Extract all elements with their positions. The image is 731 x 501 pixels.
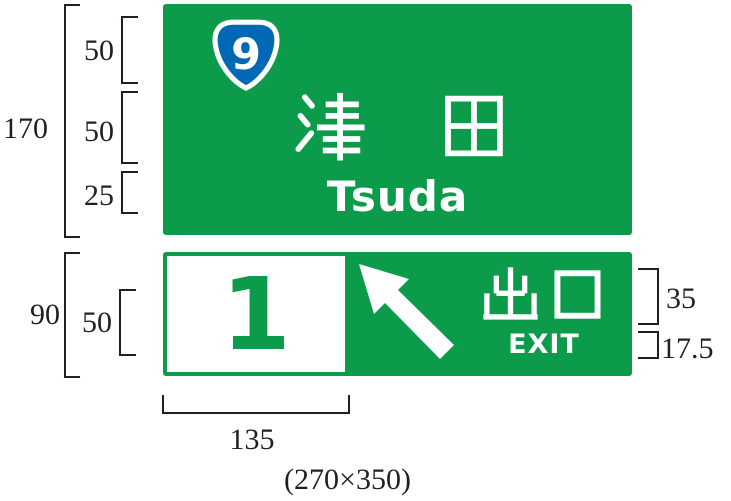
route-shield-icon: 9 <box>209 15 283 93</box>
dim-overall-size: (270×350) <box>240 464 455 496</box>
guide-sign-panel: 9 <box>163 4 632 235</box>
dim-shield-row: 50 <box>74 35 114 67</box>
kanji-tsu <box>294 90 366 167</box>
dim-total-height-bottom: 90 <box>14 299 60 331</box>
dim-kanji-row: 50 <box>74 116 114 148</box>
romaji-label: Tsuda <box>163 172 632 221</box>
bracket-exit-latin-height <box>638 331 659 359</box>
exit-number-box: 1 <box>167 256 345 372</box>
bracket-shield-row <box>121 16 138 84</box>
exit-latin-label: EXIT <box>481 329 607 360</box>
bracket-romaji-row <box>121 171 138 214</box>
bracket-number-height <box>119 289 136 356</box>
arrow-up-left-icon <box>345 254 465 374</box>
sign-spec-diagram: 9 <box>0 0 731 501</box>
bracket-exit-kanji-height <box>638 268 659 325</box>
dim-number-box-width: 135 <box>196 424 308 456</box>
route-number: 9 <box>231 30 261 80</box>
dim-number-height: 50 <box>72 307 112 339</box>
kanji-de <box>481 265 540 329</box>
dim-exit-kanji-height: 35 <box>666 283 716 315</box>
dim-exit-latin-height: 17.5 <box>661 333 731 365</box>
bracket-kanji-row <box>121 91 138 164</box>
dim-romaji-row: 25 <box>74 180 114 212</box>
exit-number: 1 <box>167 256 345 372</box>
kanji-guchi <box>548 265 607 329</box>
exit-sign-panel: 1 EX <box>163 252 632 376</box>
bracket-number-box-width <box>162 395 350 414</box>
dim-total-height-top: 170 <box>0 113 48 145</box>
kanji-da <box>438 90 510 167</box>
